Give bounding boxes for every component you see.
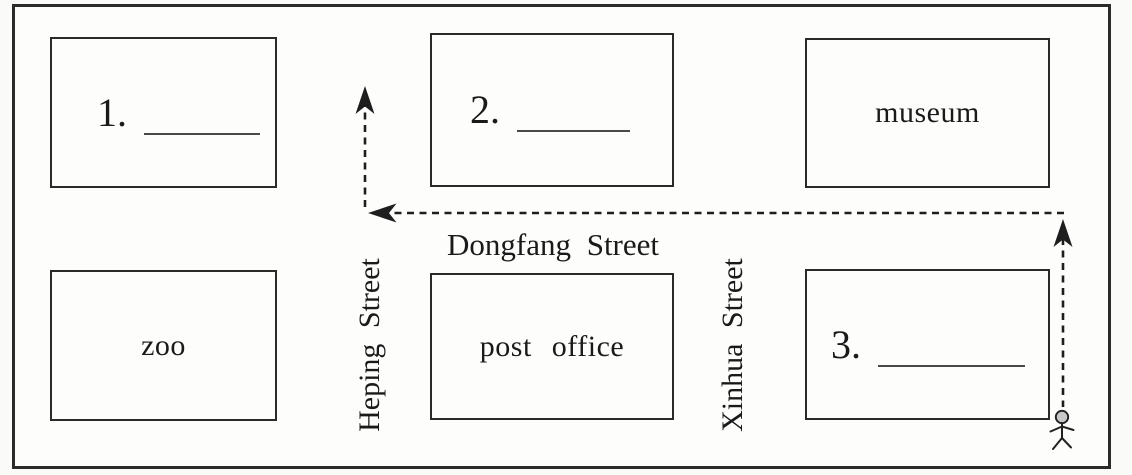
zoo-label: zoo [141,329,186,363]
building-box-post-office: post office [430,273,674,420]
post-office-label: post office [480,330,624,364]
blank-3-number: 3. [831,325,861,365]
blank-1-answer-line [144,133,260,135]
blank-1-number: 1. [97,93,127,133]
building-box-blank-2: 2. [430,33,674,187]
street-label-xinhua: Xinhua Street [714,228,752,462]
building-box-museum: museum [805,38,1050,188]
street-label-heping: Heping Street [351,228,389,462]
street-label-dongfang: Dongfang Street [413,226,693,264]
museum-label: museum [875,96,980,130]
street-map-worksheet: 1. 2. museum zoo post office 3. Dongfang… [0,0,1132,475]
building-box-blank-1: 1. [50,37,277,188]
blank-2-answer-line [517,130,630,132]
blank-2-number: 2. [470,90,500,130]
building-box-zoo: zoo [50,270,277,421]
blank-3-answer-line [878,365,1025,367]
building-box-blank-3: 3. [805,269,1050,420]
